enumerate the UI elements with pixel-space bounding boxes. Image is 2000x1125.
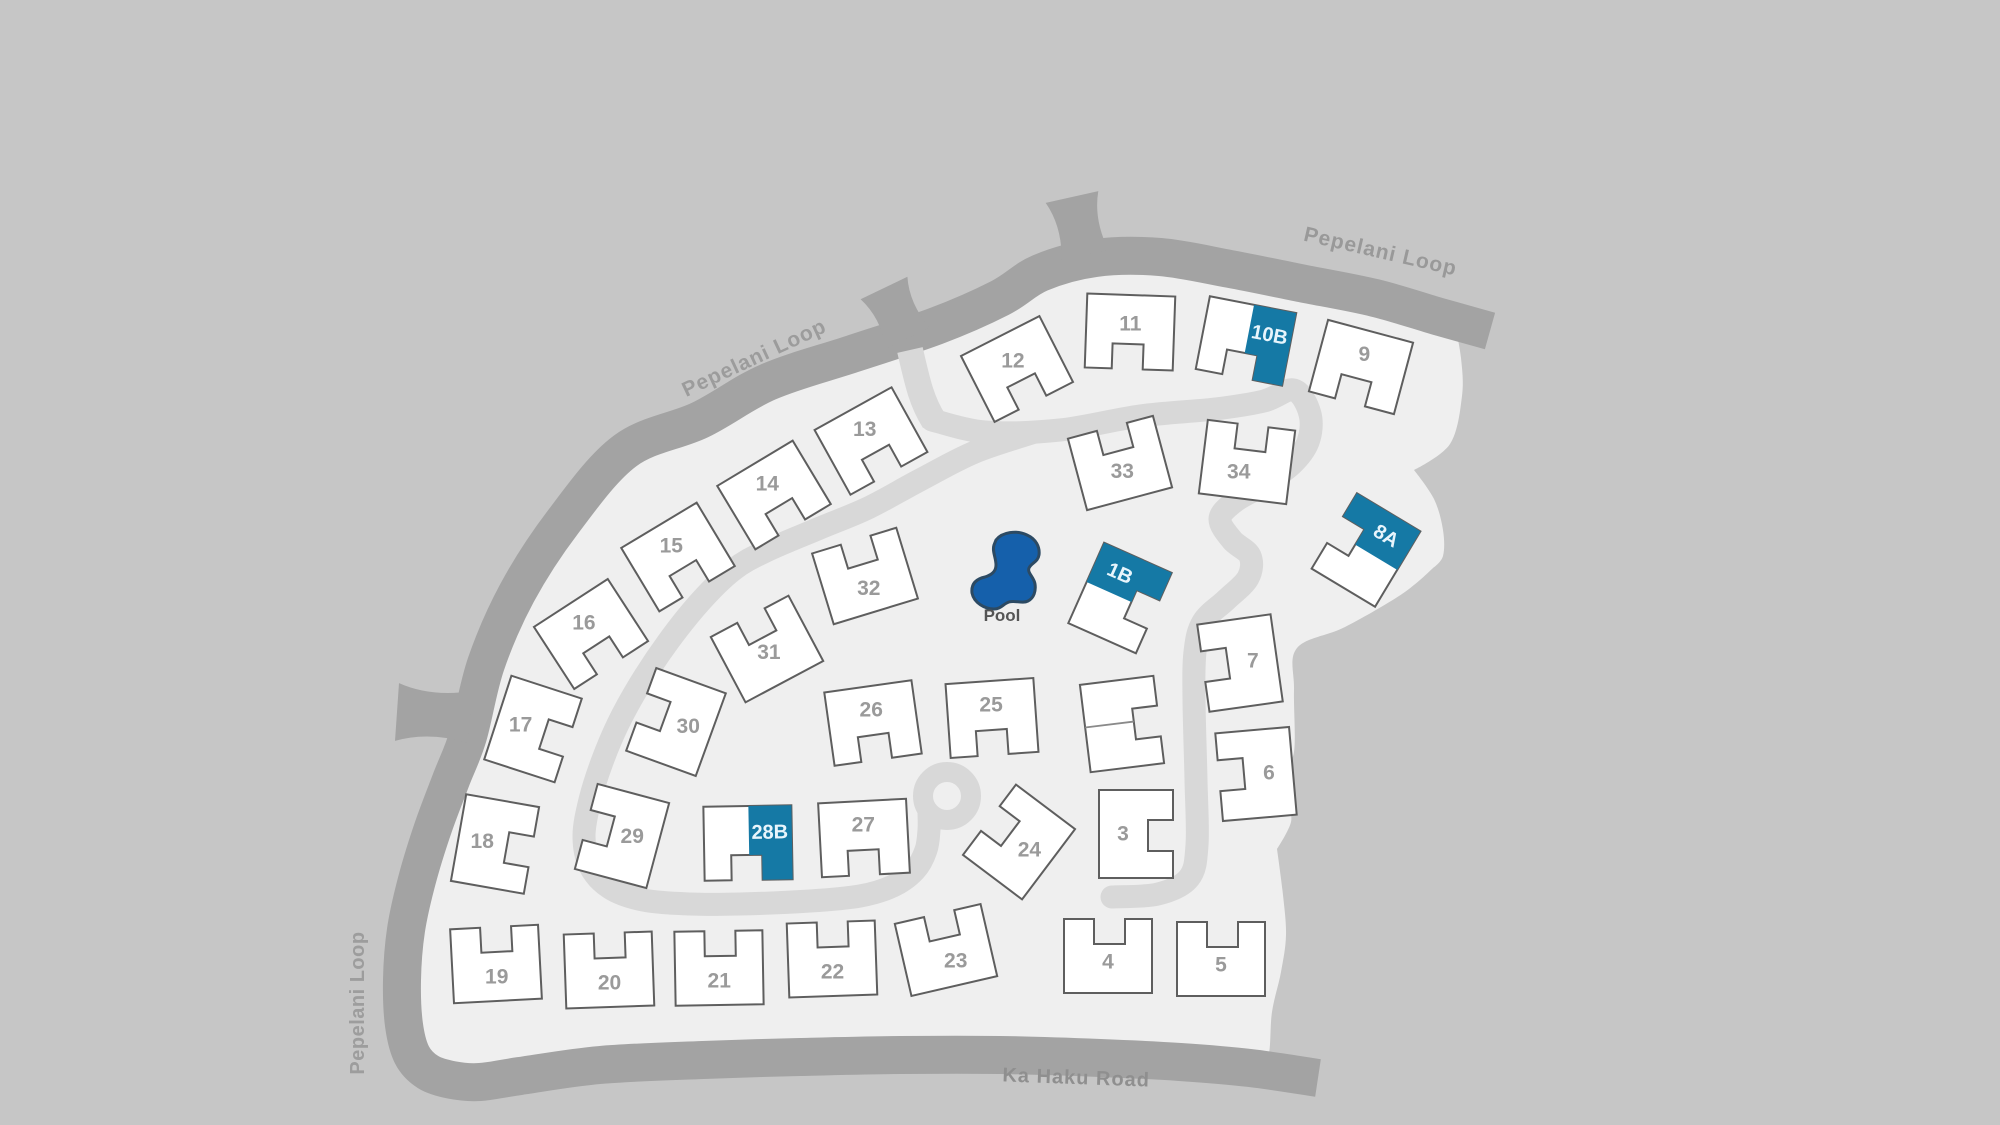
svg-text:30: 30 — [677, 715, 700, 738]
svg-text:21: 21 — [708, 970, 732, 993]
svg-text:6: 6 — [1263, 761, 1275, 784]
svg-text:14: 14 — [756, 472, 780, 495]
svg-text:18: 18 — [471, 830, 495, 853]
svg-text:16: 16 — [572, 612, 595, 635]
svg-text:Pepelani Loop: Pepelani Loop — [347, 931, 369, 1074]
svg-text:24: 24 — [1018, 838, 1042, 861]
svg-text:23: 23 — [944, 950, 967, 973]
svg-text:5: 5 — [1215, 954, 1227, 977]
svg-text:12: 12 — [1001, 350, 1024, 373]
svg-text:19: 19 — [485, 966, 508, 989]
svg-text:28B: 28B — [751, 821, 788, 844]
svg-text:17: 17 — [509, 714, 532, 737]
svg-text:34: 34 — [1227, 461, 1251, 484]
svg-text:27: 27 — [852, 814, 875, 837]
svg-text:29: 29 — [621, 825, 644, 848]
svg-text:20: 20 — [598, 972, 621, 995]
svg-text:26: 26 — [860, 699, 883, 722]
svg-text:33: 33 — [1111, 460, 1134, 483]
svg-text:7: 7 — [1247, 650, 1259, 673]
svg-text:32: 32 — [857, 577, 880, 600]
svg-text:31: 31 — [757, 641, 781, 664]
svg-text:9: 9 — [1359, 343, 1371, 366]
svg-text:11: 11 — [1119, 313, 1142, 336]
svg-text:3: 3 — [1117, 823, 1129, 846]
svg-text:Pool: Pool — [984, 606, 1021, 625]
svg-text:25: 25 — [979, 694, 1003, 717]
svg-text:4: 4 — [1102, 951, 1114, 974]
svg-text:22: 22 — [821, 961, 844, 984]
svg-text:13: 13 — [853, 418, 876, 441]
svg-text:15: 15 — [660, 534, 684, 557]
